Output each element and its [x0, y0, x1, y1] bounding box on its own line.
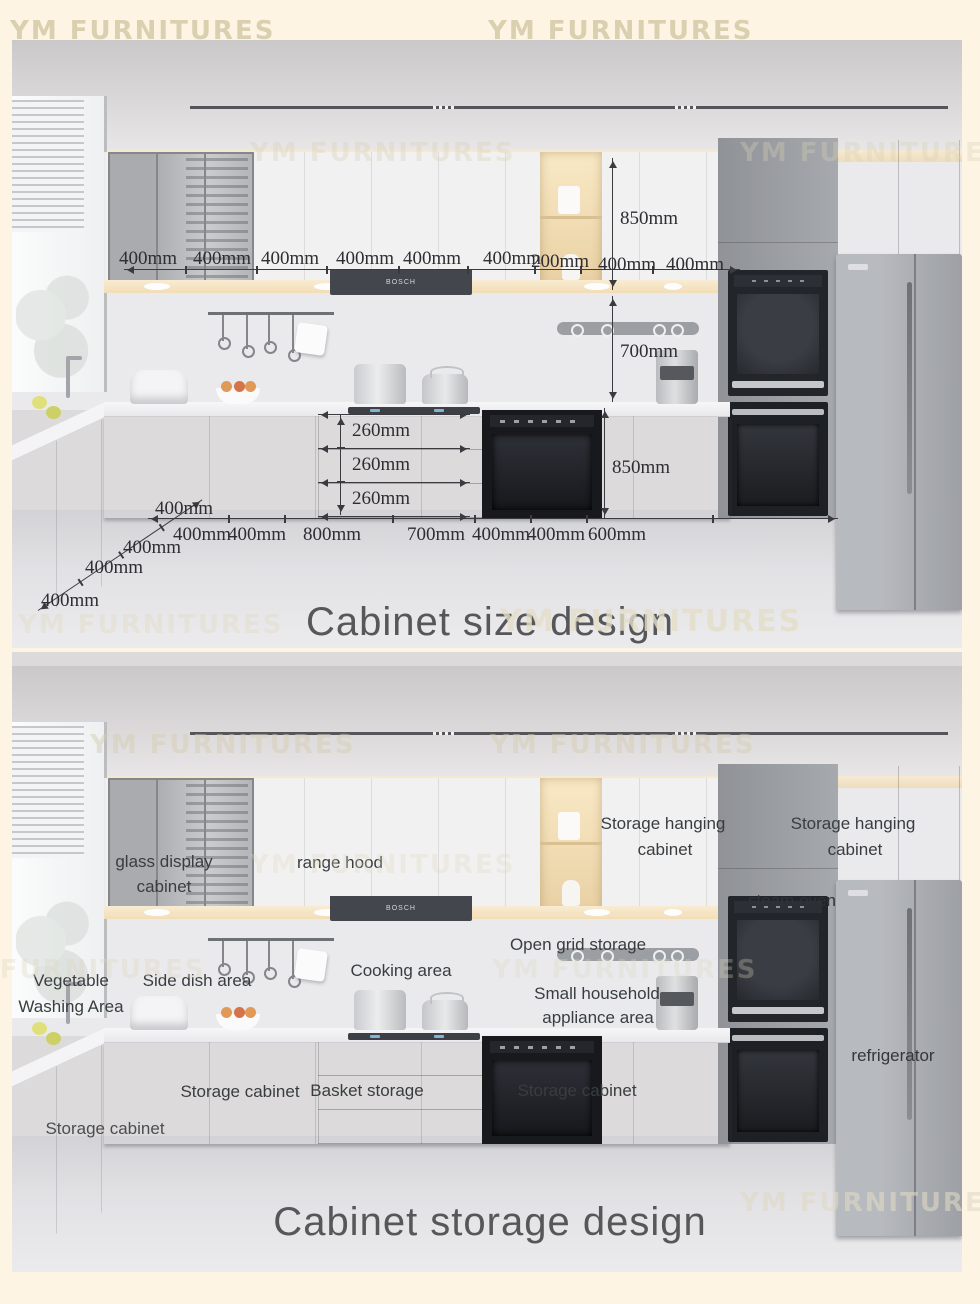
storage-design-photo: BOSCH glass display cabinet range hoo [12, 652, 962, 1272]
area-label-glass-display: glass display [115, 852, 212, 872]
rice-cooker [130, 370, 188, 404]
dimension-label: 400mm [123, 537, 181, 559]
rice-cooker [130, 996, 188, 1030]
lemon [46, 406, 61, 419]
cooking-pan [422, 1000, 468, 1030]
drawer-dim-line [340, 415, 341, 515]
area-label-storage-cabinet-right: Storage cabinet [517, 1081, 636, 1101]
dimension-label: 400mm [261, 248, 319, 270]
base-oven [482, 410, 602, 518]
area-label-storage-cabinet-left: Storage cabinet [180, 1082, 299, 1102]
area-label-small-appliance: Small household [534, 984, 660, 1004]
steam-oven [728, 270, 828, 396]
hook-rail [557, 322, 699, 335]
range-hood: BOSCH [330, 270, 472, 295]
dimension-label: 400mm [228, 524, 286, 546]
dimension-label: 400mm [472, 524, 530, 546]
area-label-storage-cabinet-far-left: Storage cabinet [45, 1119, 164, 1139]
cutting-board [294, 948, 328, 982]
dimension-line-splash-height [612, 296, 613, 402]
panel-title: Cabinet size design [306, 600, 674, 645]
area-label-vegetable-washing: Vegetable [33, 971, 109, 991]
dimension-line-upper-height [612, 158, 613, 290]
area-label-refrigerator: refrigerator [851, 1046, 934, 1066]
dimension-label: 700mm [620, 341, 678, 363]
track-light [190, 106, 948, 109]
area-label-hanging-cabinet-2b: cabinet [828, 840, 883, 860]
dimension-label: 850mm [612, 457, 670, 479]
range-hood: BOSCH [330, 896, 472, 921]
area-label-hanging-cabinet-1: Storage hanging [601, 814, 726, 834]
hood-brand: BOSCH [386, 905, 416, 912]
built-in-oven [728, 1028, 828, 1142]
dimension-label: 400mm [85, 557, 143, 579]
lemon [32, 396, 47, 409]
dimension-label: 400mm [598, 254, 656, 276]
area-label-cooking: Cooking area [350, 961, 451, 981]
lemon [32, 1022, 47, 1035]
area-label-glass-display-2: cabinet [137, 877, 192, 897]
coffee-machine [656, 976, 698, 1030]
utensil-rail [208, 312, 334, 315]
cooking-pan [422, 374, 468, 404]
faucet [66, 358, 70, 398]
area-label-range-hood: range hood [297, 853, 383, 873]
dimension-label: 600mm [588, 524, 646, 546]
open-shelf-niche [540, 778, 602, 914]
lemon [46, 1032, 61, 1045]
dimension-label: 400mm [119, 248, 177, 270]
drawer-line [318, 516, 470, 517]
dimension-label: 700mm [407, 524, 465, 546]
dimension-label: 200mm [531, 251, 589, 273]
ceiling [12, 666, 962, 778]
dimension-label: 400mm [403, 248, 461, 270]
ceiling [12, 40, 962, 152]
hood-brand: BOSCH [386, 279, 416, 286]
area-label-hanging-cabinet-2: Storage hanging [791, 814, 916, 834]
dimension-label: 400mm [173, 524, 231, 546]
cutting-board [294, 322, 328, 356]
plant [16, 274, 98, 392]
dimension-label: 400mm [193, 248, 251, 270]
area-label-basket-storage: Basket storage [310, 1081, 423, 1101]
dimension-label: 400mm [336, 248, 394, 270]
dimension-label: 800mm [303, 524, 361, 546]
dimension-line-base-height [604, 408, 605, 518]
area-label-steam-oven: steam oven [748, 891, 836, 911]
panel-title: Cabinet storage design [273, 1200, 706, 1245]
dimension-label: 400mm [527, 524, 585, 546]
area-label-open-grid: Open grid storage [510, 935, 646, 955]
cooking-pot [354, 990, 406, 1030]
built-in-oven [728, 402, 828, 516]
dimension-line-bottom [148, 518, 838, 519]
area-label-hanging-cabinet-1b: cabinet [638, 840, 693, 860]
dimension-label: 850mm [620, 208, 678, 230]
utensil-rail [208, 938, 334, 941]
track-light [190, 732, 948, 735]
kitchen-scene: BOSCH [12, 666, 962, 1272]
upper-cabinets-right [838, 140, 962, 256]
cooking-pot [354, 364, 406, 404]
window-blinds [12, 100, 84, 232]
dimension-label: 260mm [352, 454, 410, 476]
dimension-label: 400mm [666, 254, 724, 276]
refrigerator [836, 254, 962, 610]
dimension-label: 260mm [352, 420, 410, 442]
steam-oven [728, 896, 828, 1022]
window-blinds [12, 726, 84, 858]
size-design-photo: BOSCH 400mm 400mm 400 [12, 40, 962, 648]
area-label-small-appliance-2: appliance area [542, 1008, 654, 1028]
product-image: { "watermark": { "text": "YM FURNITURES"… [0, 0, 980, 1304]
area-label-vegetable-washing-2: Washing Area [18, 997, 123, 1017]
glass-display-cabinet [108, 778, 254, 918]
cooktop [348, 1033, 480, 1040]
area-label-side-dish: Side dish area [143, 971, 252, 991]
dimension-label: 400mm [155, 498, 213, 520]
dimension-label: 260mm [352, 488, 410, 510]
window [12, 96, 107, 392]
dimension-label: 400mm [41, 590, 99, 612]
